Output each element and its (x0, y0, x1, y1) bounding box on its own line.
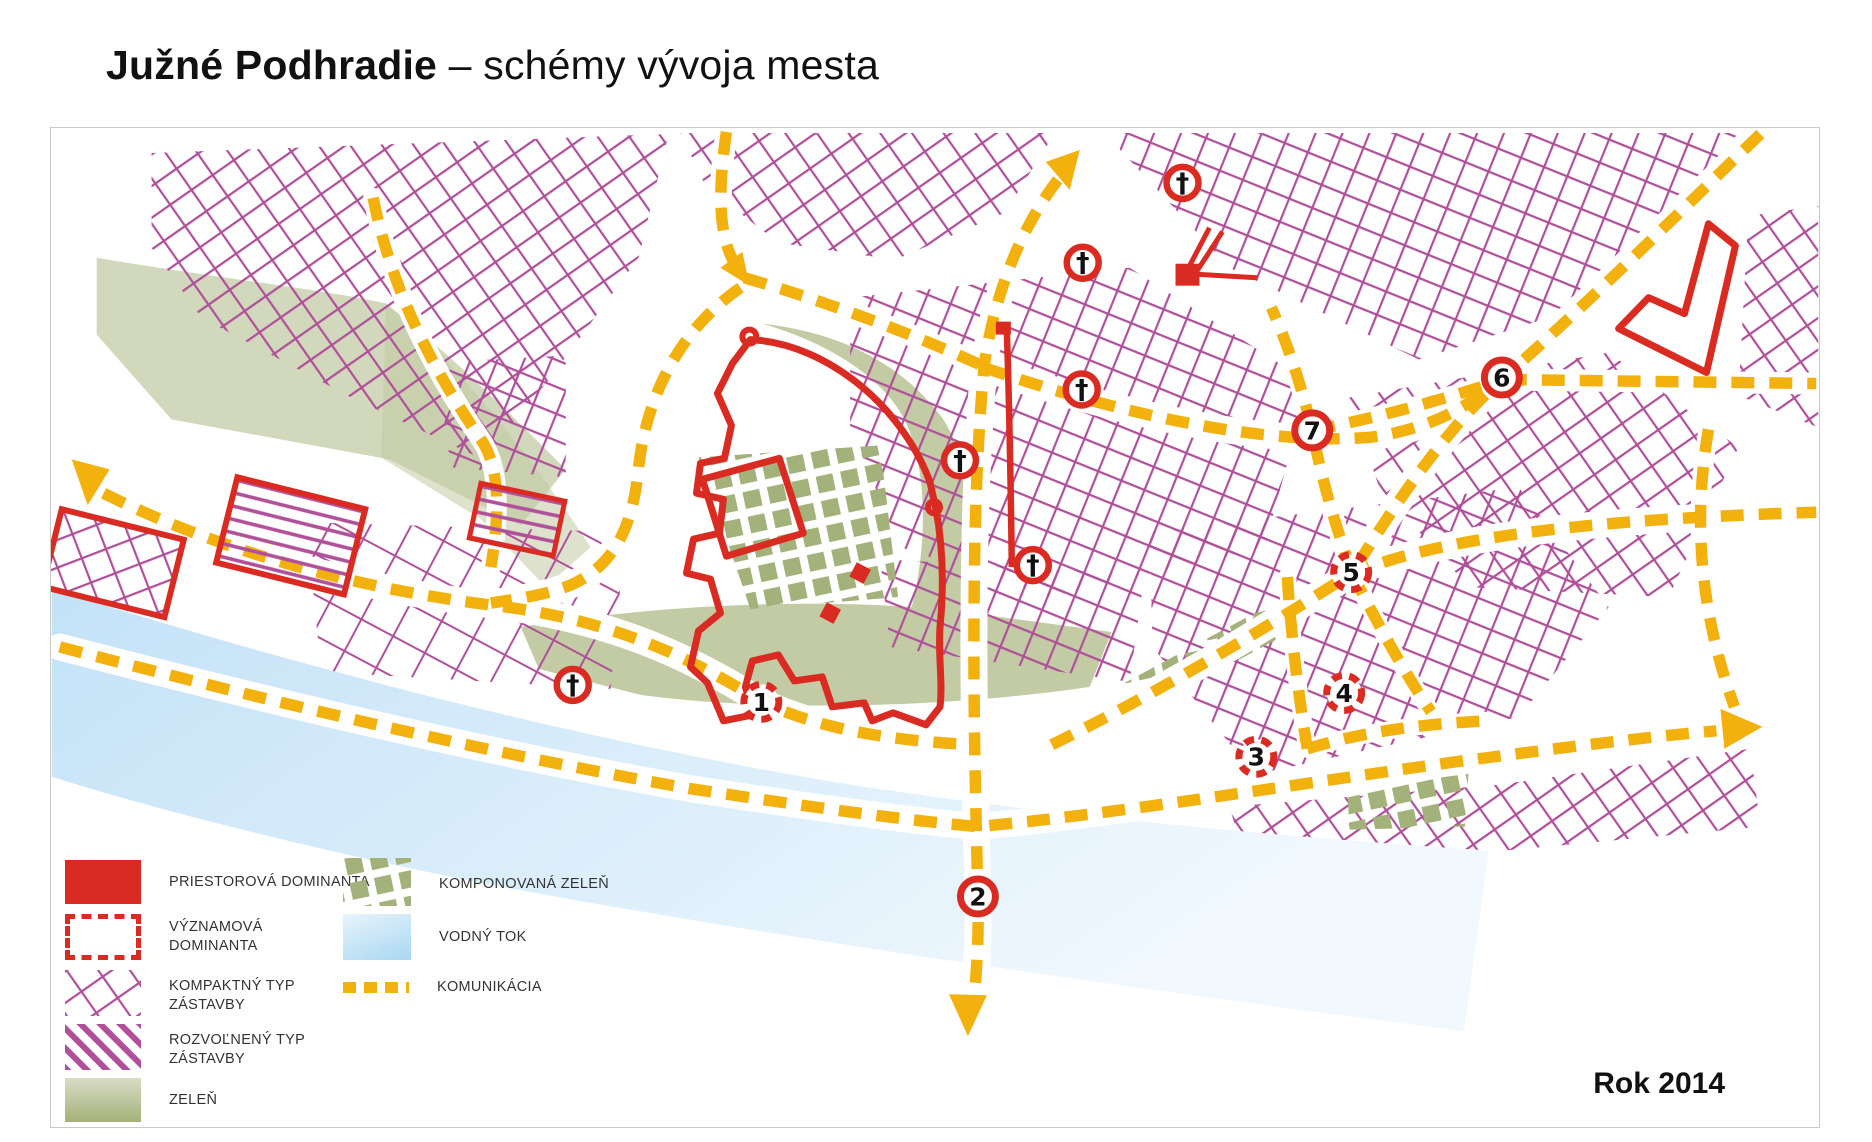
church-marker: † (1067, 247, 1099, 279)
svg-text:5: 5 (1342, 558, 1359, 587)
title-rest: – schémy vývoja mesta (437, 42, 879, 88)
title-bold: Južné Podhradie (106, 42, 437, 88)
svg-text:†: † (1176, 168, 1189, 199)
landmark-marker-3: 3 (1239, 739, 1274, 774)
church-marker: † (557, 669, 589, 701)
svg-text:1: 1 (753, 688, 770, 717)
landmark-marker-6: 6 (1484, 360, 1519, 395)
arrow-east (1720, 709, 1762, 749)
svg-text:†: † (1075, 374, 1088, 405)
map-canvas: ††††††1234567 (51, 128, 1819, 1127)
landmark-marker-2: 2 (960, 879, 995, 914)
svg-text:6: 6 (1493, 363, 1510, 392)
church-marker: † (1167, 167, 1199, 199)
svg-text:3: 3 (1248, 743, 1265, 772)
svg-text:2: 2 (969, 882, 986, 911)
svg-text:7: 7 (1304, 416, 1321, 445)
landmark-marker-5: 5 (1334, 555, 1369, 590)
church-marker: † (1066, 374, 1098, 406)
svg-text:†: † (953, 445, 966, 476)
year-label: Rok 2014 (1593, 1067, 1725, 1101)
city-development-map: ††††††1234567 PRIESTOROVÁ DOMINANTA VÝZN… (50, 127, 1820, 1128)
landmark-marker-1: 1 (744, 684, 779, 719)
church-marker: † (1017, 549, 1049, 581)
svg-text:4: 4 (1336, 679, 1353, 708)
landmark-marker-7: 7 (1295, 413, 1330, 448)
svg-text:†: † (1076, 248, 1089, 279)
svg-text:†: † (1026, 550, 1039, 581)
svg-text:†: † (566, 670, 579, 701)
landmark-marker-4: 4 (1327, 675, 1362, 710)
page-title: Južné Podhradie – schémy vývoja mesta (106, 42, 879, 89)
church-marker: † (944, 444, 976, 476)
